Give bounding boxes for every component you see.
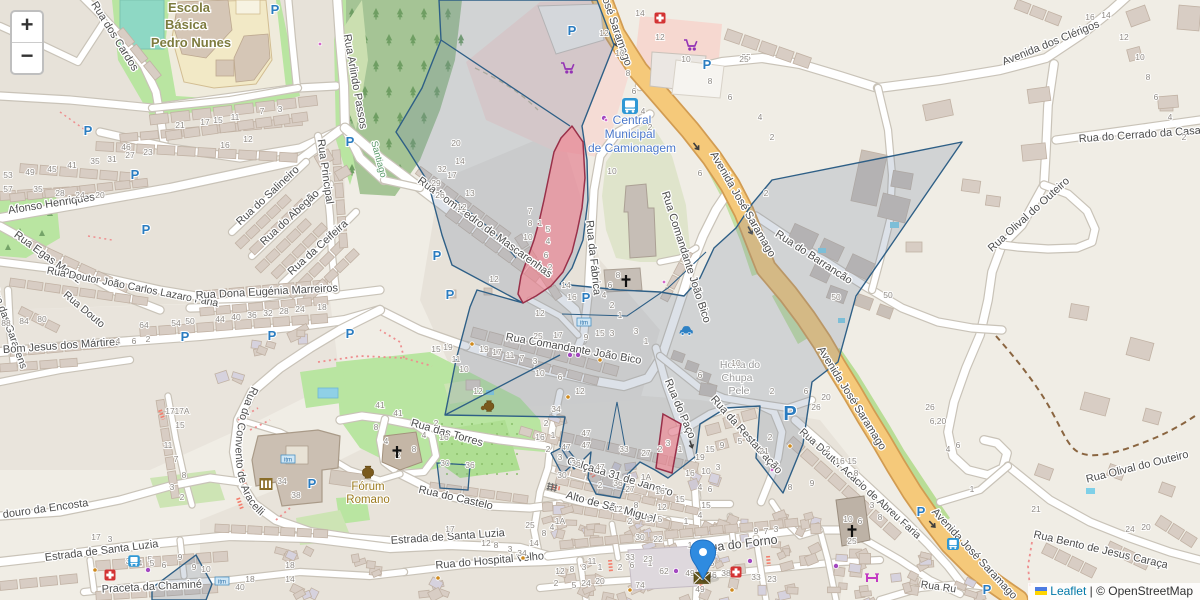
- svg-text:P: P: [983, 582, 992, 597]
- svg-text:8: 8: [494, 540, 499, 550]
- svg-text:itm: itm: [284, 458, 292, 464]
- svg-text:7: 7: [520, 353, 525, 363]
- svg-text:Pedro Nunes: Pedro Nunes: [151, 35, 231, 50]
- svg-text:80: 80: [37, 314, 47, 324]
- svg-text:22: 22: [653, 534, 663, 544]
- svg-text:4: 4: [698, 510, 703, 520]
- svg-text:6: 6: [858, 516, 863, 526]
- svg-text:44: 44: [215, 314, 225, 324]
- svg-text:8: 8: [854, 468, 859, 478]
- svg-text:3: 3: [610, 328, 615, 338]
- svg-text:15: 15: [675, 494, 685, 504]
- svg-text:2: 2: [146, 334, 151, 344]
- svg-text:6: 6: [956, 440, 961, 450]
- svg-text:16: 16: [835, 456, 845, 466]
- svg-text:17: 17: [492, 347, 502, 357]
- svg-text:itm: itm: [580, 321, 588, 327]
- svg-text:1: 1: [684, 516, 689, 526]
- svg-text:20: 20: [1141, 522, 1151, 532]
- svg-text:25: 25: [533, 331, 543, 341]
- svg-text:20: 20: [595, 576, 605, 586]
- svg-text:33: 33: [751, 572, 761, 582]
- svg-text:P: P: [917, 504, 926, 519]
- svg-text:Romano: Romano: [346, 494, 389, 506]
- svg-text:36: 36: [465, 460, 475, 470]
- svg-text:20: 20: [451, 138, 461, 148]
- svg-text:9: 9: [178, 552, 183, 562]
- svg-text:1: 1: [538, 218, 543, 228]
- svg-text:4: 4: [641, 106, 646, 116]
- svg-text:15: 15: [847, 456, 857, 466]
- svg-text:47: 47: [581, 428, 591, 438]
- svg-text:33: 33: [619, 444, 629, 454]
- svg-text:8: 8: [634, 500, 639, 510]
- svg-text:24: 24: [1125, 524, 1135, 534]
- svg-text:17: 17: [165, 406, 175, 416]
- svg-text:31: 31: [107, 154, 117, 164]
- svg-text:36: 36: [571, 458, 581, 468]
- svg-text:30: 30: [440, 458, 450, 468]
- svg-text:6: 6: [1154, 92, 1159, 102]
- svg-text:35: 35: [90, 156, 100, 166]
- svg-text:4: 4: [116, 336, 121, 346]
- svg-text:14: 14: [1101, 10, 1111, 20]
- svg-text:P: P: [346, 134, 355, 149]
- svg-text:57: 57: [3, 184, 13, 194]
- svg-text:24: 24: [295, 304, 305, 314]
- svg-text:47: 47: [561, 442, 571, 452]
- svg-text:1A: 1A: [555, 516, 566, 526]
- svg-text:17: 17: [553, 330, 563, 340]
- svg-text:16: 16: [655, 486, 665, 496]
- svg-text:62: 62: [659, 566, 669, 576]
- svg-text:49: 49: [685, 568, 695, 578]
- svg-text:16: 16: [535, 432, 545, 442]
- svg-text:74: 74: [635, 580, 645, 590]
- svg-text:8: 8: [878, 512, 883, 522]
- svg-text:5: 5: [738, 436, 743, 446]
- svg-text:20: 20: [821, 392, 831, 402]
- svg-text:12: 12: [1119, 32, 1129, 42]
- svg-text:12: 12: [657, 502, 667, 512]
- svg-text:2: 2: [826, 444, 831, 454]
- svg-text:17: 17: [447, 170, 457, 180]
- svg-text:12: 12: [473, 386, 483, 396]
- svg-text:9: 9: [720, 440, 725, 450]
- svg-text:36: 36: [613, 478, 623, 488]
- svg-text:10: 10: [843, 514, 853, 524]
- svg-text:50: 50: [185, 316, 195, 326]
- svg-text:8: 8: [570, 564, 575, 574]
- svg-text:3: 3: [774, 524, 779, 534]
- svg-text:26: 26: [435, 190, 445, 200]
- svg-text:8: 8: [542, 528, 547, 538]
- svg-text:3: 3: [533, 356, 538, 366]
- svg-text:8: 8: [528, 218, 533, 228]
- svg-text:15: 15: [431, 344, 441, 354]
- svg-text:88: 88: [1, 318, 11, 328]
- svg-text:3: 3: [870, 500, 875, 510]
- svg-text:19: 19: [443, 342, 453, 352]
- svg-text:12: 12: [613, 504, 623, 514]
- svg-text:6: 6: [698, 370, 703, 380]
- svg-text:17: 17: [91, 532, 101, 542]
- svg-text:26: 26: [925, 402, 935, 412]
- svg-text:4: 4: [1168, 112, 1173, 122]
- svg-text:2: 2: [180, 492, 185, 502]
- svg-text:Central: Central: [613, 113, 652, 127]
- svg-text:6: 6: [630, 560, 635, 570]
- svg-text:Pele: Pele: [728, 385, 749, 397]
- svg-text:8: 8: [1146, 72, 1151, 82]
- svg-text:11: 11: [164, 440, 173, 450]
- svg-text:21: 21: [1031, 504, 1041, 514]
- svg-text:24: 24: [581, 578, 591, 588]
- svg-text:1: 1: [551, 430, 556, 440]
- svg-text:1: 1: [970, 484, 975, 494]
- svg-text:9: 9: [192, 562, 197, 572]
- svg-text:Chupa: Chupa: [722, 372, 753, 384]
- svg-text:50: 50: [831, 292, 841, 302]
- svg-text:17A: 17A: [174, 406, 189, 416]
- svg-text:12: 12: [243, 134, 253, 144]
- svg-text:11: 11: [588, 556, 597, 566]
- svg-text:4: 4: [602, 290, 607, 300]
- svg-text:12: 12: [655, 32, 665, 42]
- svg-text:10: 10: [201, 564, 211, 574]
- svg-text:2: 2: [648, 122, 653, 132]
- svg-text:P: P: [446, 287, 455, 302]
- svg-text:10: 10: [607, 166, 617, 176]
- svg-text:15: 15: [701, 500, 711, 510]
- svg-text:10: 10: [701, 466, 711, 476]
- svg-text:P: P: [582, 290, 591, 305]
- svg-text:23: 23: [767, 574, 777, 584]
- svg-text:8: 8: [182, 470, 187, 480]
- svg-text:7: 7: [260, 106, 265, 116]
- svg-text:6,20: 6,20: [930, 416, 947, 426]
- svg-text:11: 11: [231, 112, 240, 122]
- svg-text:16: 16: [220, 140, 230, 150]
- svg-text:18: 18: [317, 302, 327, 312]
- svg-text:16: 16: [1085, 12, 1095, 22]
- svg-text:28: 28: [279, 306, 289, 316]
- svg-text:25: 25: [847, 536, 857, 546]
- svg-text:2: 2: [1182, 132, 1187, 142]
- svg-text:23: 23: [143, 147, 153, 157]
- svg-text:P: P: [142, 222, 151, 237]
- svg-text:53: 53: [3, 170, 13, 180]
- svg-text:4: 4: [946, 444, 951, 454]
- svg-text:4: 4: [546, 236, 551, 246]
- svg-text:1: 1: [648, 558, 653, 568]
- svg-text:P: P: [346, 326, 355, 341]
- svg-text:38: 38: [721, 568, 731, 578]
- svg-text:25: 25: [525, 520, 535, 530]
- svg-text:8: 8: [374, 422, 379, 432]
- svg-text:41: 41: [375, 400, 385, 410]
- svg-text:1: 1: [644, 336, 649, 346]
- svg-text:10: 10: [523, 232, 533, 242]
- svg-text:41: 41: [67, 160, 77, 170]
- svg-text:6: 6: [804, 386, 809, 396]
- svg-text:P: P: [84, 123, 93, 138]
- svg-text:2: 2: [770, 386, 775, 396]
- svg-text:30: 30: [635, 532, 645, 542]
- svg-text:27: 27: [641, 448, 651, 458]
- svg-text:27: 27: [625, 484, 635, 494]
- svg-text:7: 7: [764, 526, 769, 536]
- svg-text:20: 20: [95, 190, 105, 200]
- svg-text:21: 21: [175, 120, 185, 130]
- svg-text:5: 5: [150, 558, 155, 568]
- svg-text:12: 12: [481, 538, 491, 548]
- svg-text:5: 5: [658, 514, 663, 524]
- svg-text:4: 4: [698, 482, 703, 492]
- svg-text:3: 3: [634, 326, 639, 336]
- svg-text:1: 1: [618, 310, 623, 320]
- svg-text:7: 7: [528, 206, 533, 216]
- svg-text:3: 3: [558, 452, 563, 462]
- svg-text:41: 41: [393, 408, 403, 418]
- svg-text:9: 9: [754, 526, 759, 536]
- svg-text:15: 15: [213, 115, 223, 125]
- svg-text:6: 6: [708, 484, 713, 494]
- svg-text:1: 1: [646, 514, 651, 524]
- svg-text:49: 49: [695, 584, 705, 594]
- svg-text:P: P: [433, 248, 442, 263]
- svg-text:64: 64: [139, 320, 149, 330]
- svg-text:Básica: Básica: [165, 17, 208, 32]
- svg-text:12: 12: [575, 386, 585, 396]
- svg-text:10: 10: [1135, 52, 1145, 62]
- svg-text:16: 16: [567, 292, 577, 302]
- svg-text:2: 2: [598, 480, 603, 490]
- svg-text:13: 13: [465, 188, 475, 198]
- svg-text:84: 84: [19, 316, 29, 326]
- svg-text:3: 3: [278, 104, 283, 114]
- svg-text:29: 29: [431, 178, 441, 188]
- svg-text:40: 40: [235, 582, 245, 592]
- svg-text:8: 8: [616, 270, 621, 280]
- svg-text:itm: itm: [218, 580, 226, 586]
- svg-text:8: 8: [788, 482, 793, 492]
- svg-text:P: P: [568, 23, 577, 38]
- svg-text:4: 4: [422, 430, 427, 440]
- svg-text:2: 2: [610, 300, 615, 310]
- svg-text:2: 2: [658, 444, 663, 454]
- svg-text:6: 6: [558, 372, 563, 382]
- svg-text:14: 14: [529, 538, 539, 548]
- svg-text:P: P: [308, 476, 317, 491]
- svg-text:25: 25: [739, 54, 749, 64]
- svg-text:6: 6: [698, 168, 703, 178]
- svg-text:34: 34: [277, 476, 287, 486]
- svg-text:11: 11: [506, 350, 515, 360]
- svg-text:15: 15: [705, 444, 715, 454]
- svg-text:12: 12: [599, 28, 609, 38]
- svg-text:19: 19: [479, 344, 489, 354]
- svg-text:8: 8: [412, 444, 417, 454]
- svg-text:8: 8: [708, 76, 713, 86]
- svg-text:1: 1: [678, 444, 683, 454]
- svg-text:14: 14: [285, 574, 295, 584]
- svg-text:14: 14: [561, 280, 571, 290]
- svg-text:5: 5: [546, 224, 551, 234]
- svg-text:15: 15: [595, 328, 605, 338]
- svg-text:30: 30: [557, 470, 567, 480]
- svg-text:9: 9: [584, 332, 589, 342]
- svg-text:34: 34: [551, 404, 561, 414]
- svg-text:8: 8: [626, 68, 631, 78]
- svg-text:45: 45: [47, 164, 57, 174]
- svg-text:2: 2: [618, 562, 623, 572]
- svg-text:2: 2: [544, 418, 549, 428]
- svg-text:7: 7: [174, 454, 179, 464]
- svg-text:6: 6: [608, 280, 613, 290]
- svg-text:6: 6: [728, 92, 733, 102]
- svg-text:10: 10: [459, 364, 469, 374]
- svg-text:26: 26: [811, 402, 821, 412]
- svg-text:P: P: [703, 57, 712, 72]
- svg-text:24: 24: [75, 190, 85, 200]
- svg-text:3: 3: [108, 534, 113, 544]
- svg-text:18: 18: [285, 560, 295, 570]
- svg-text:16: 16: [439, 432, 449, 442]
- svg-text:9: 9: [810, 478, 815, 488]
- svg-text:12: 12: [489, 274, 499, 284]
- svg-text:de Camionagem: de Camionagem: [588, 141, 676, 155]
- svg-text:47: 47: [595, 462, 605, 472]
- svg-text:6: 6: [632, 86, 637, 96]
- svg-text:49: 49: [25, 167, 35, 177]
- svg-text:12: 12: [457, 202, 467, 212]
- svg-text:28: 28: [55, 188, 65, 198]
- svg-text:12: 12: [535, 308, 545, 318]
- svg-text:P: P: [268, 328, 277, 343]
- svg-text:3: 3: [582, 562, 587, 572]
- svg-text:6: 6: [544, 250, 549, 260]
- svg-text:6: 6: [162, 560, 167, 570]
- svg-text:32: 32: [263, 308, 273, 318]
- svg-text:10: 10: [731, 358, 741, 368]
- svg-text:10: 10: [615, 48, 625, 58]
- svg-text:1: 1: [598, 562, 603, 572]
- svg-text:Fórum: Fórum: [351, 481, 384, 493]
- svg-text:1A: 1A: [641, 472, 652, 482]
- svg-text:32: 32: [437, 164, 447, 174]
- svg-text:27: 27: [125, 150, 135, 160]
- svg-text:2: 2: [770, 132, 775, 142]
- svg-text:15: 15: [175, 420, 185, 430]
- svg-text:2: 2: [546, 444, 551, 454]
- svg-text:11: 11: [452, 354, 461, 364]
- svg-text:18: 18: [245, 574, 255, 584]
- svg-text:16: 16: [685, 468, 695, 478]
- svg-text:17: 17: [200, 117, 210, 127]
- svg-text:14: 14: [455, 156, 465, 166]
- svg-text:38: 38: [291, 490, 301, 500]
- svg-text:2: 2: [764, 188, 769, 198]
- svg-text:3: 3: [716, 462, 721, 472]
- svg-text:21: 21: [759, 446, 769, 456]
- svg-text:40: 40: [231, 312, 241, 322]
- svg-text:2: 2: [434, 418, 439, 428]
- svg-text:47: 47: [581, 440, 591, 450]
- svg-text:10: 10: [681, 54, 691, 64]
- svg-text:P: P: [783, 403, 796, 425]
- svg-text:P: P: [131, 167, 140, 182]
- svg-text:P: P: [271, 2, 280, 17]
- svg-text:3: 3: [666, 438, 671, 448]
- svg-text:10: 10: [535, 368, 545, 378]
- svg-text:2: 2: [628, 516, 633, 526]
- svg-text:4: 4: [384, 436, 389, 446]
- svg-text:4: 4: [758, 112, 763, 122]
- svg-text:2: 2: [554, 578, 559, 588]
- svg-text:14: 14: [635, 8, 645, 18]
- svg-text:3: 3: [508, 544, 513, 554]
- svg-text:Escola: Escola: [168, 0, 211, 15]
- svg-text:2: 2: [548, 262, 553, 272]
- svg-text:17: 17: [445, 524, 455, 534]
- svg-text:P: P: [181, 329, 190, 344]
- svg-text:35: 35: [33, 184, 43, 194]
- svg-text:50: 50: [883, 290, 893, 300]
- svg-text:54: 54: [171, 318, 181, 328]
- svg-text:3: 3: [170, 482, 175, 492]
- svg-text:6: 6: [132, 336, 137, 346]
- svg-text:36: 36: [247, 310, 257, 320]
- svg-text:2: 2: [768, 432, 773, 442]
- svg-text:12: 12: [555, 566, 565, 576]
- svg-text:5: 5: [572, 580, 577, 590]
- svg-text:19: 19: [695, 452, 705, 462]
